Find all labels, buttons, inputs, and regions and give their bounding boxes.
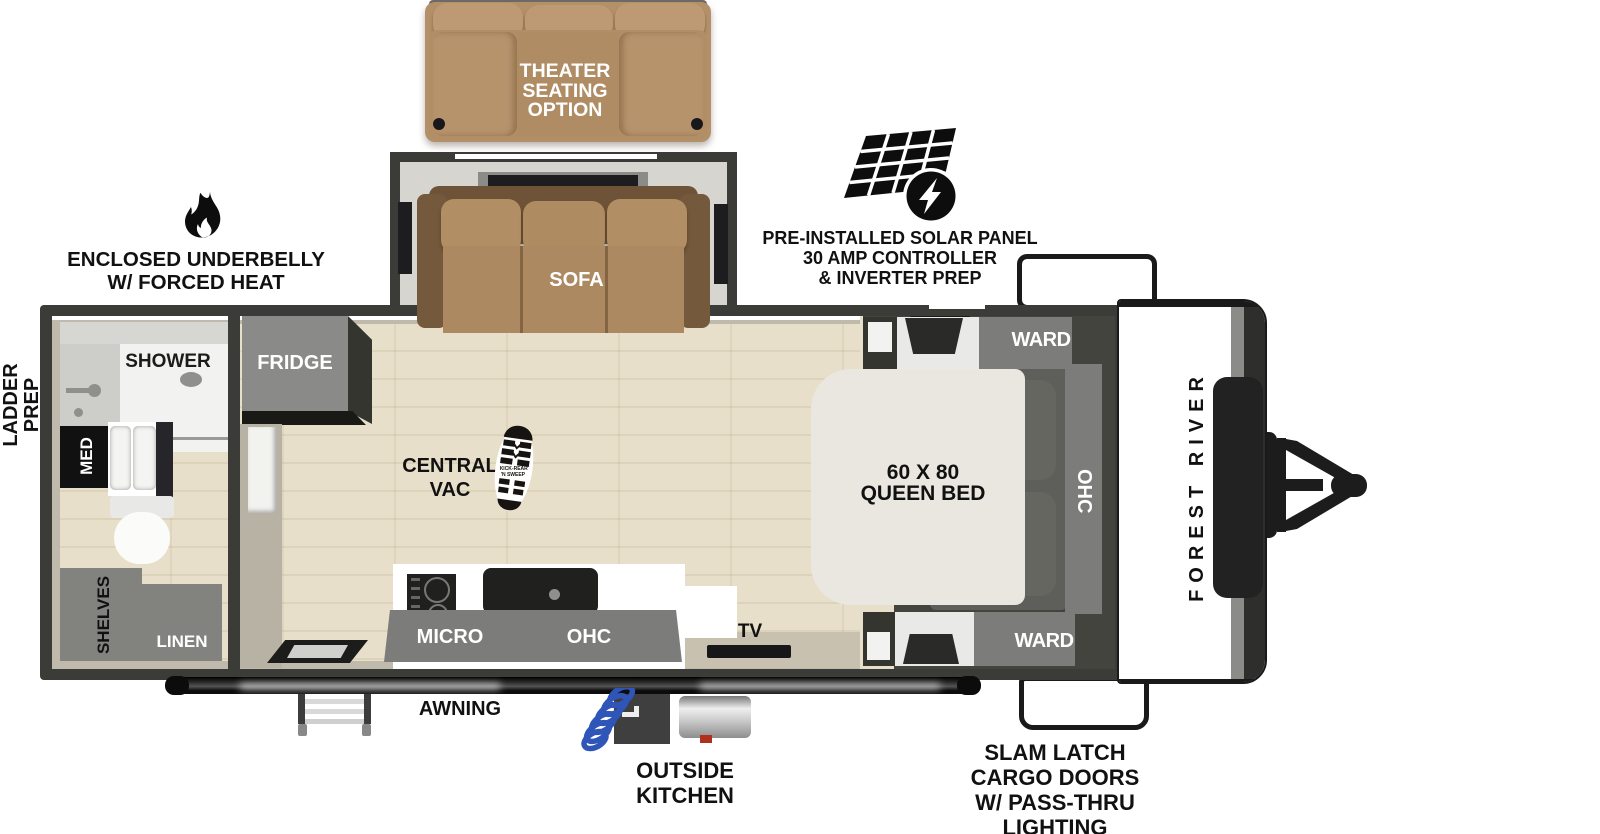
svg-text:'N SWEEP: 'N SWEEP <box>501 472 526 478</box>
